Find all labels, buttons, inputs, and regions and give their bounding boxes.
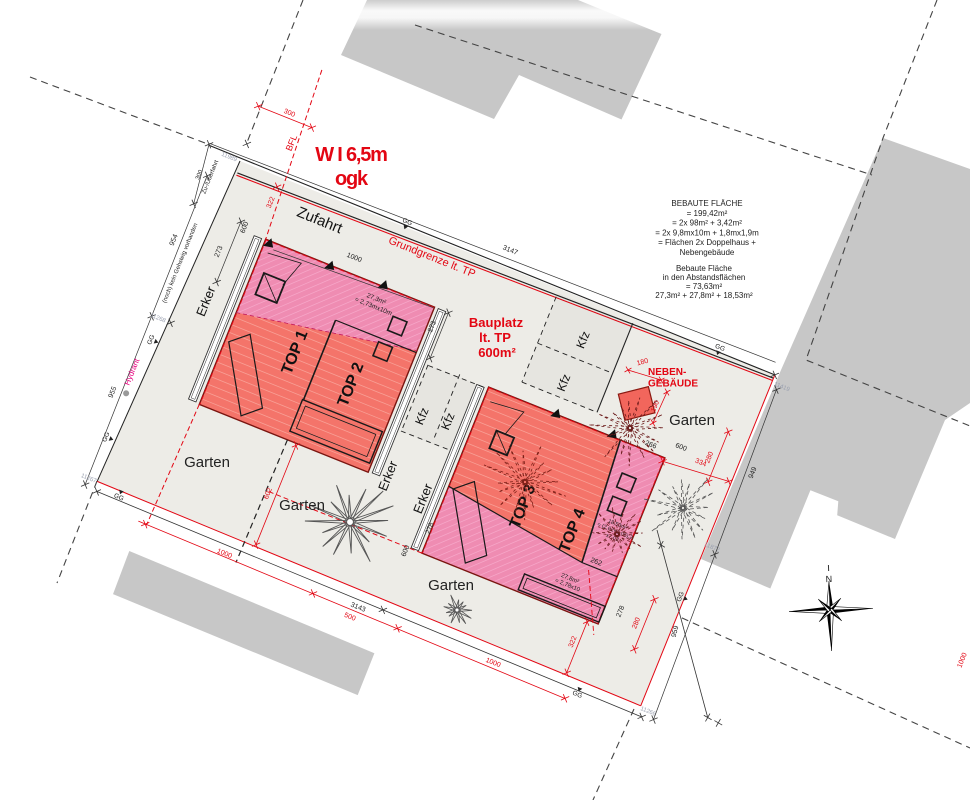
svg-text:lt. TP: lt. TP <box>479 330 511 345</box>
svg-text:Nebengebäude: Nebengebäude <box>680 248 735 257</box>
svg-text:= 199,42m²: = 199,42m² <box>687 209 728 218</box>
svg-text:in den Abstandsflächen: in den Abstandsflächen <box>663 273 746 282</box>
svg-text:600m²: 600m² <box>478 345 516 360</box>
svg-text:Garten: Garten <box>279 497 325 514</box>
svg-text:Garten: Garten <box>184 454 230 471</box>
svg-text:BEBAUTE FLÄCHE: BEBAUTE FLÄCHE <box>671 199 742 208</box>
svg-text:W I 6,5m: W I 6,5m <box>315 144 387 166</box>
svg-text:Bebaute Fläche: Bebaute Fläche <box>676 264 733 273</box>
svg-text:ogk: ogk <box>335 168 369 190</box>
svg-text:GEBÄUDE: GEBÄUDE <box>648 377 698 390</box>
svg-text:Garten: Garten <box>428 577 474 594</box>
svg-text:Bauplatz: Bauplatz <box>469 315 524 330</box>
svg-text:= 2x 9,8mx10m + 1,8mx1,9m: = 2x 9,8mx10m + 1,8mx1,9m <box>655 228 759 237</box>
svg-text:Garten: Garten <box>669 412 715 429</box>
svg-text:27,3m² + 27,8m² + 18,53m²: 27,3m² + 27,8m² + 18,53m² <box>655 291 753 300</box>
svg-text:= 2x 98m² + 3,42m²: = 2x 98m² + 3,42m² <box>672 219 742 228</box>
svg-text:= Flächen 2x Doppelhaus +: = Flächen 2x Doppelhaus + <box>658 238 756 247</box>
svg-text:NEBEN-: NEBEN- <box>648 367 686 378</box>
svg-text:= 73,63m²: = 73,63m² <box>686 282 723 291</box>
